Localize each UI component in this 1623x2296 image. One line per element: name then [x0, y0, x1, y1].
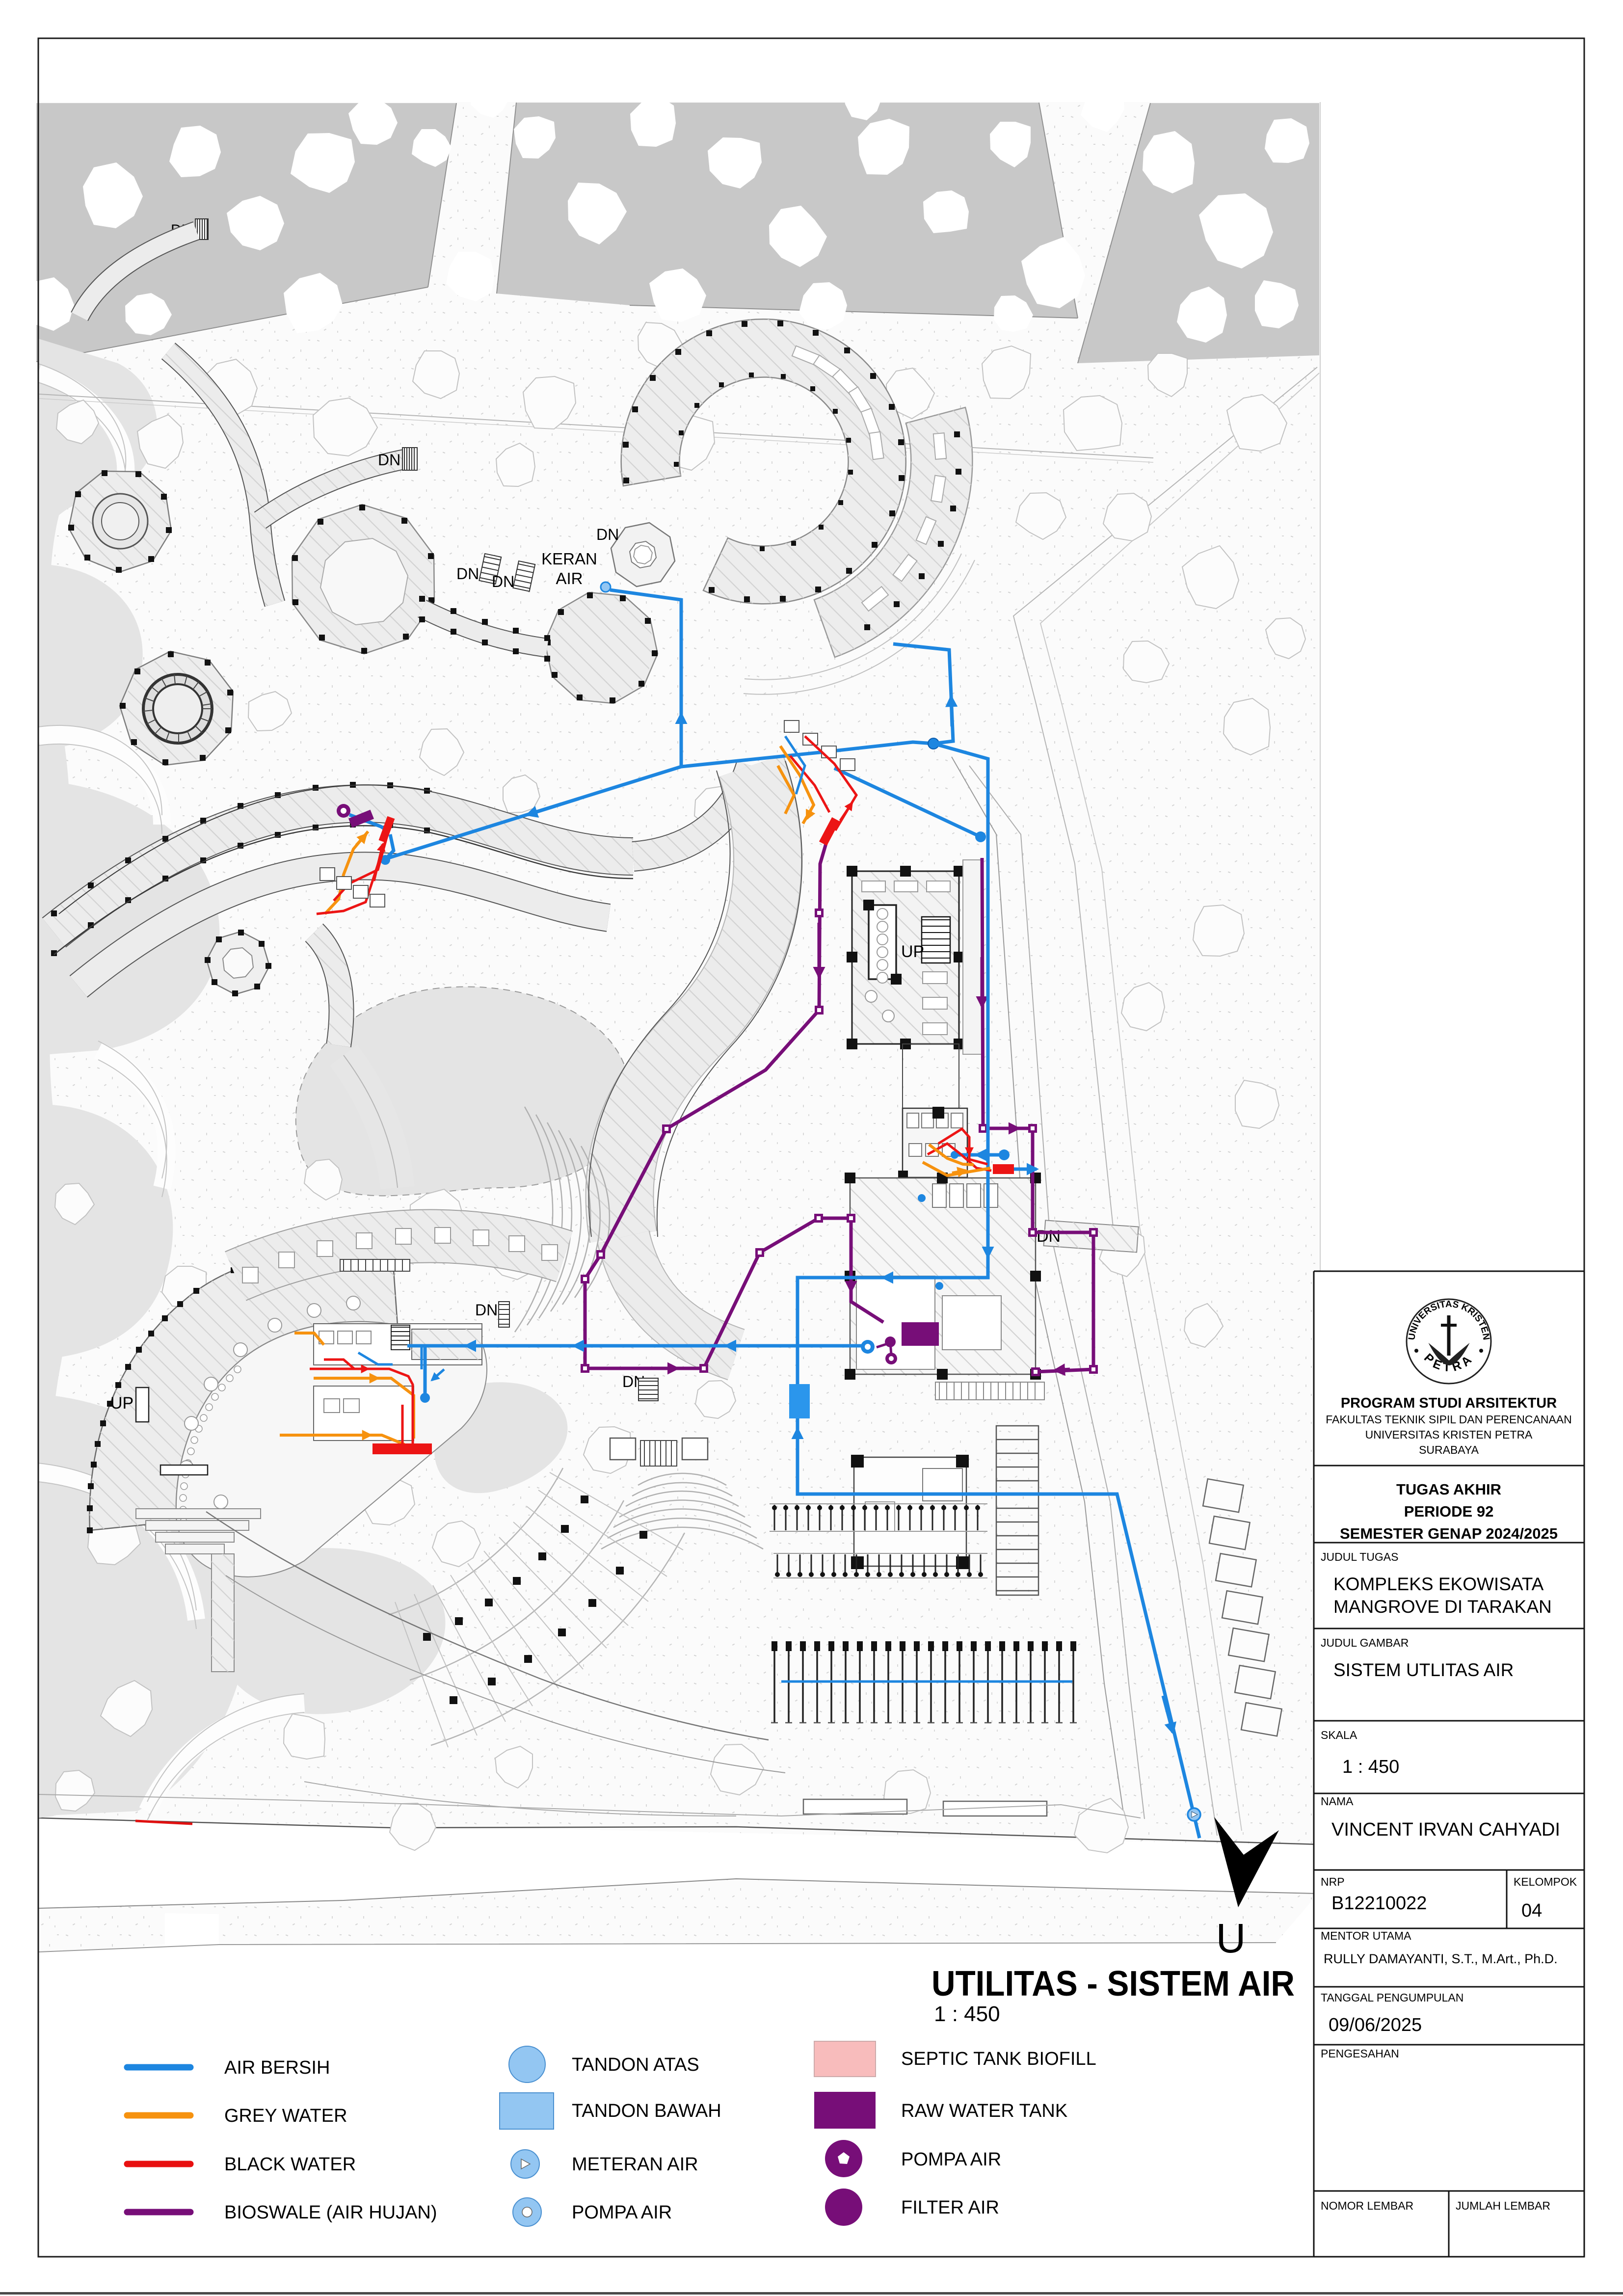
svg-text:JUDUL TUGAS: JUDUL TUGAS — [1321, 1550, 1398, 1563]
svg-text:U: U — [1216, 1915, 1246, 1961]
svg-text:NAMA: NAMA — [1321, 1795, 1354, 1808]
svg-text:DN: DN — [596, 526, 619, 543]
svg-text:UTILITAS - SISTEM AIR: UTILITAS - SISTEM AIR — [931, 1964, 1295, 2003]
svg-text:1 : 450: 1 : 450 — [1342, 1757, 1399, 1777]
svg-text:PROGRAM STUDI ARSITEKTUR: PROGRAM STUDI ARSITEKTUR — [1341, 1395, 1557, 1411]
svg-text:SISTEM UTLITAS AIR: SISTEM UTLITAS AIR — [1333, 1660, 1514, 1680]
svg-text:NRP: NRP — [1321, 1875, 1345, 1888]
svg-text:TANDON BAWAH: TANDON BAWAH — [572, 2101, 721, 2121]
svg-text:POMPA AIR: POMPA AIR — [572, 2202, 672, 2223]
svg-text:AIR: AIR — [556, 569, 583, 587]
svg-text:NOMOR LEMBAR: NOMOR LEMBAR — [1321, 2199, 1413, 2212]
svg-text:SEMESTER GENAP 2024/2025: SEMESTER GENAP 2024/2025 — [1340, 1525, 1558, 1542]
svg-text:KELOMPOK: KELOMPOK — [1514, 1875, 1577, 1888]
svg-text:RULLY DAMAYANTI, S.T., M.Art.,: RULLY DAMAYANTI, S.T., M.Art., Ph.D. — [1324, 1951, 1558, 1966]
svg-text:DN: DN — [378, 451, 400, 469]
svg-text:JUMLAH LEMBAR: JUMLAH LEMBAR — [1456, 2199, 1550, 2212]
svg-text:DN: DN — [456, 565, 479, 583]
svg-text:BIOSWALE (AIR HUJAN): BIOSWALE (AIR HUJAN) — [224, 2202, 437, 2223]
svg-text:B12210022: B12210022 — [1331, 1893, 1427, 1914]
svg-text:UP: UP — [901, 942, 924, 961]
svg-text:BLACK WATER: BLACK WATER — [224, 2154, 356, 2175]
svg-text:POMPA AIR: POMPA AIR — [901, 2149, 1001, 2170]
svg-text:UP: UP — [110, 1394, 133, 1413]
svg-text:RAW WATER TANK: RAW WATER TANK — [901, 2101, 1067, 2121]
svg-text:KERAN: KERAN — [541, 550, 597, 568]
svg-text:DN: DN — [1037, 1227, 1061, 1246]
svg-text:MENTOR UTAMA: MENTOR UTAMA — [1321, 1929, 1411, 1942]
svg-text:DN: DN — [492, 573, 514, 590]
svg-text:TANGGAL PENGUMPULAN: TANGGAL PENGUMPULAN — [1321, 1991, 1463, 2004]
svg-text:AIR BERSIH: AIR BERSIH — [224, 2057, 330, 2078]
svg-text:1 : 450: 1 : 450 — [934, 2002, 1000, 2026]
svg-text:METERAN AIR: METERAN AIR — [572, 2154, 698, 2175]
svg-text:GREY WATER: GREY WATER — [224, 2106, 347, 2126]
svg-text:FAKULTAS TEKNIK SIPIL DAN PERE: FAKULTAS TEKNIK SIPIL DAN PERENCANAAN — [1326, 1413, 1571, 1426]
svg-text:FILTER AIR: FILTER AIR — [901, 2197, 999, 2218]
svg-text:04: 04 — [1521, 1900, 1542, 1921]
svg-text:MANGROVE DI TARAKAN: MANGROVE DI TARAKAN — [1333, 1597, 1552, 1617]
svg-text:KOMPLEKS EKOWISATA: KOMPLEKS EKOWISATA — [1333, 1574, 1544, 1594]
svg-text:SEPTIC TANK BIOFILL: SEPTIC TANK BIOFILL — [901, 2049, 1096, 2069]
svg-text:VINCENT IRVAN CAHYADI: VINCENT IRVAN CAHYADI — [1331, 1819, 1560, 1840]
svg-text:TUGAS AKHIR: TUGAS AKHIR — [1396, 1481, 1501, 1498]
svg-text:SKALA: SKALA — [1321, 1729, 1357, 1741]
svg-text:TANDON ATAS: TANDON ATAS — [572, 2055, 699, 2075]
svg-text:UNIVERSITAS KRISTEN PETRA: UNIVERSITAS KRISTEN PETRA — [1365, 1428, 1533, 1441]
svg-text:SURABAYA: SURABAYA — [1419, 1443, 1479, 1456]
svg-text:JUDUL GAMBAR: JUDUL GAMBAR — [1321, 1636, 1409, 1649]
svg-text:09/06/2025: 09/06/2025 — [1329, 2015, 1422, 2035]
svg-text:PENGESAHAN: PENGESAHAN — [1321, 2047, 1399, 2060]
svg-text:PERIODE 92: PERIODE 92 — [1404, 1503, 1494, 1520]
svg-text:DN: DN — [475, 1301, 498, 1319]
